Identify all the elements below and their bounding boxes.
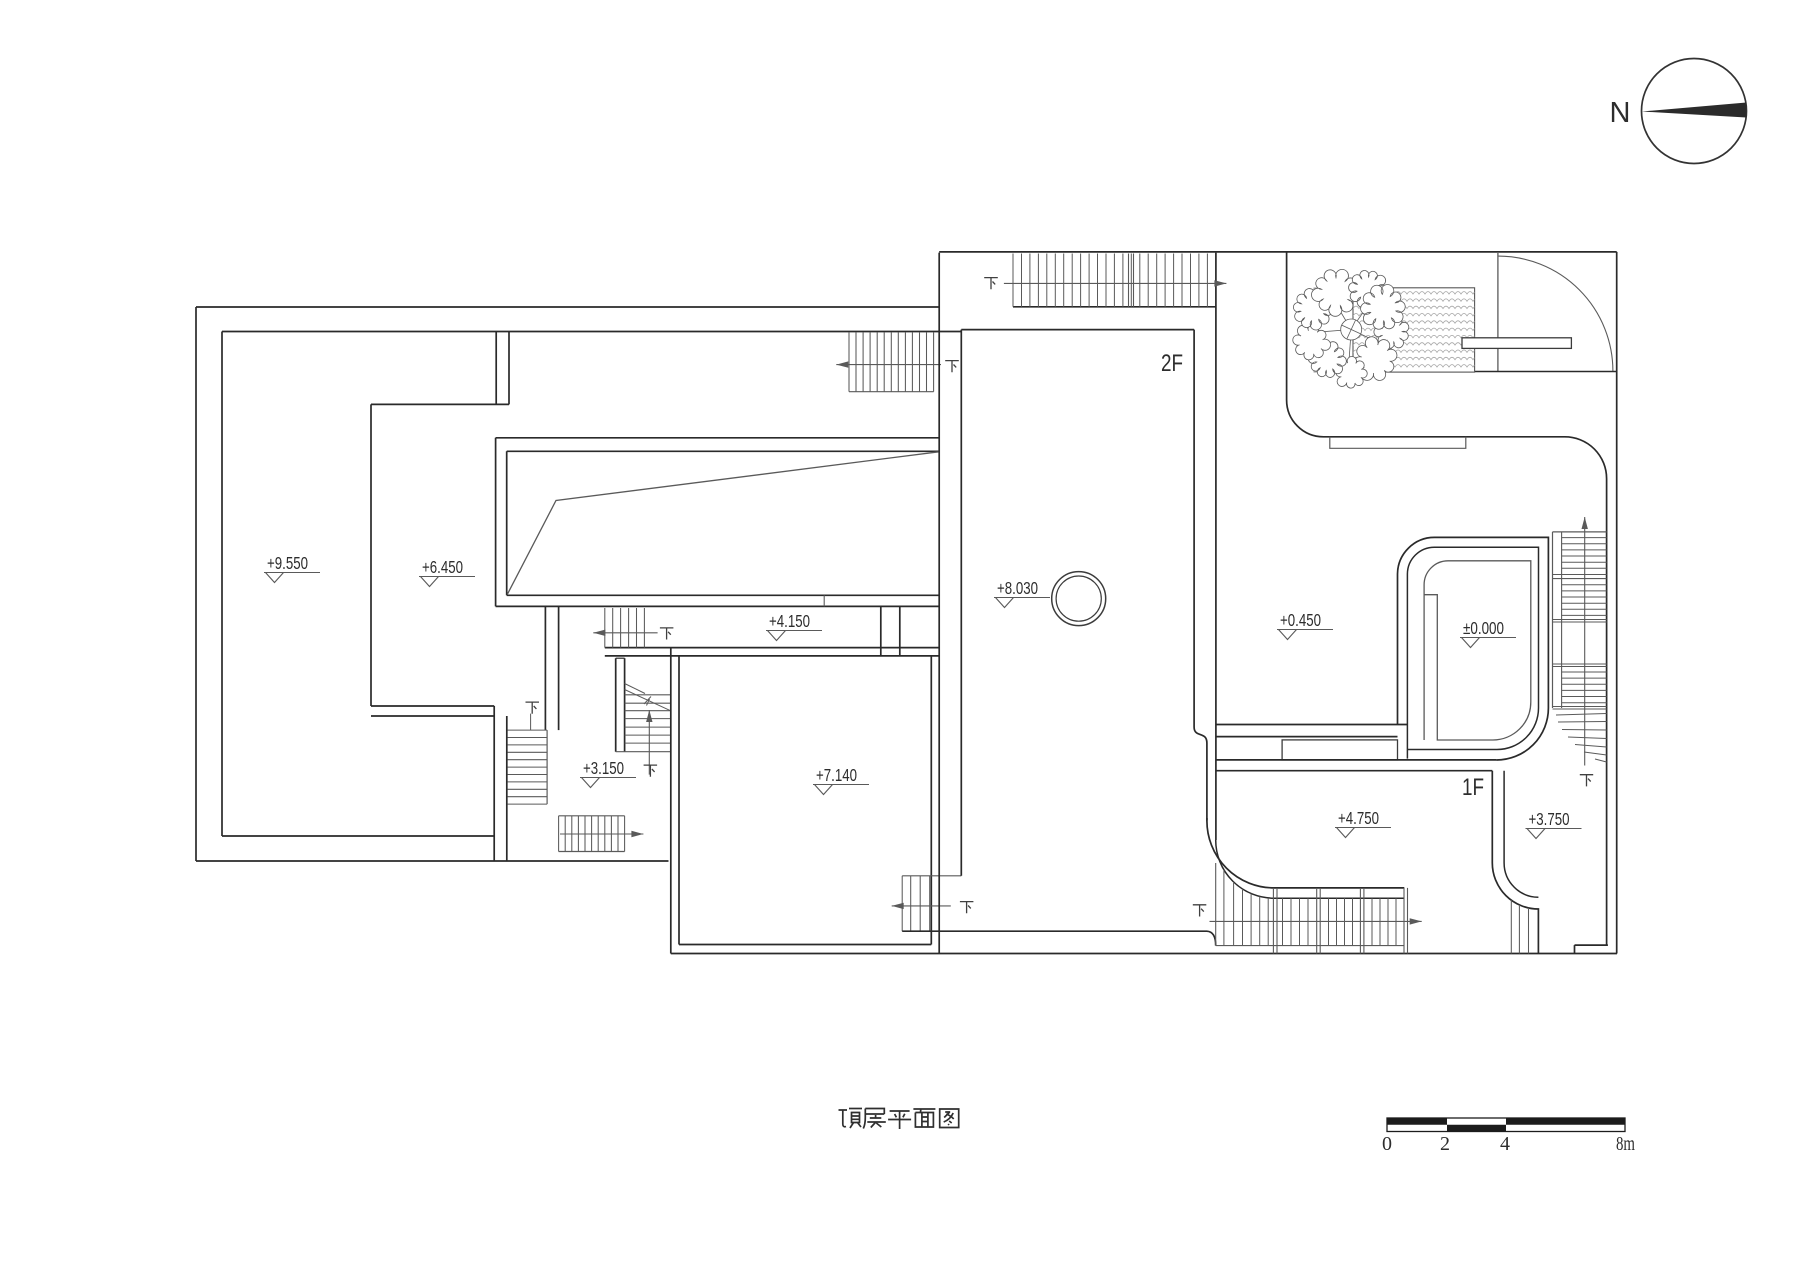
svg-text:+4.150: +4.150 [769,611,810,631]
svg-text:4: 4 [1500,1133,1510,1155]
svg-text:8m: 8m [1616,1133,1635,1155]
svg-text:+8.030: +8.030 [997,578,1038,598]
svg-text:+3.150: +3.150 [583,758,624,778]
svg-text:+4.750: +4.750 [1338,808,1379,828]
svg-text:+6.450: +6.450 [422,557,463,577]
svg-text:+7.140: +7.140 [816,765,857,785]
svg-text:±0.000: ±0.000 [1463,618,1504,638]
svg-text:1F: 1F [1462,774,1484,801]
svg-text:+9.550: +9.550 [267,553,308,573]
svg-text:2: 2 [1440,1133,1450,1155]
svg-text:2F: 2F [1161,350,1183,377]
svg-text:+3.750: +3.750 [1529,809,1570,829]
svg-text:0: 0 [1382,1133,1392,1155]
svg-text:+0.450: +0.450 [1280,610,1321,630]
svg-text:N: N [1610,97,1631,129]
